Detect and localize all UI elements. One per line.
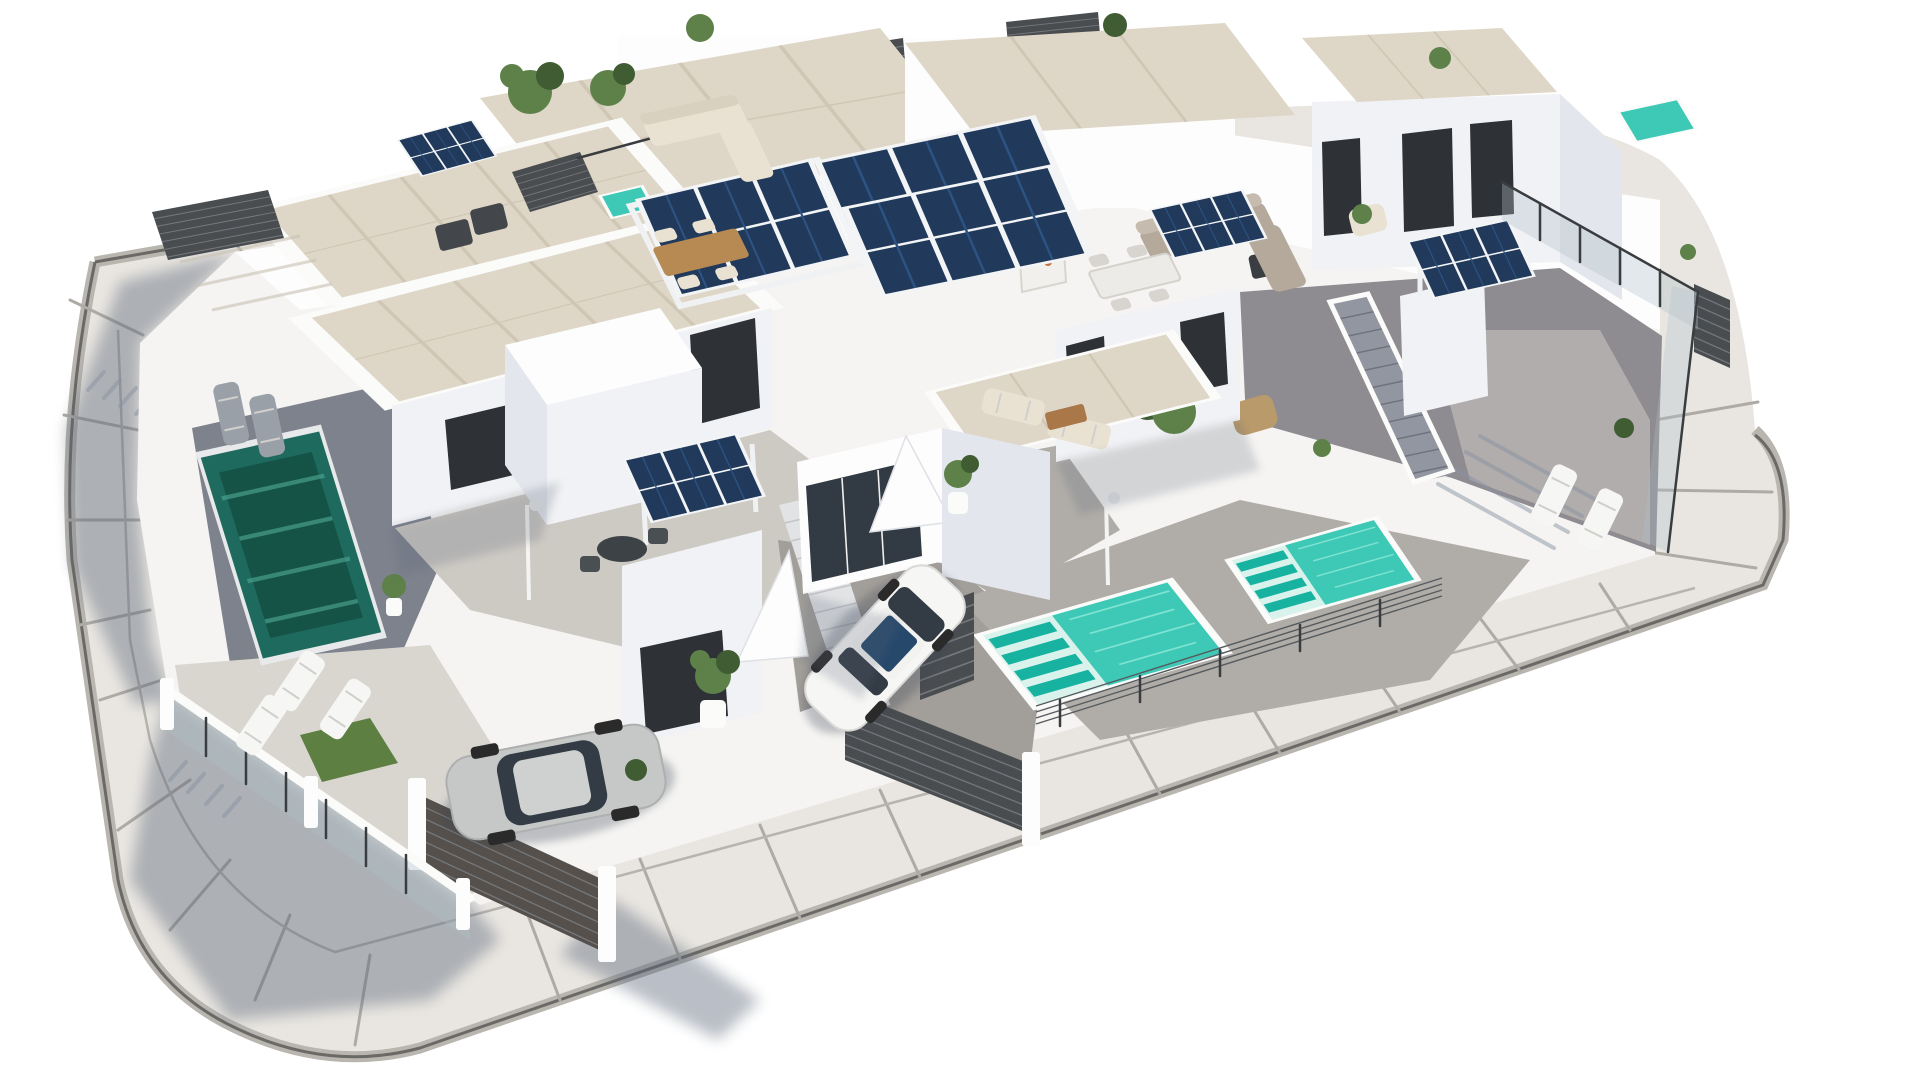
round-table-chair-1 (580, 556, 600, 572)
balustrade-pillar-2 (304, 776, 318, 828)
round-table-chair-2 (648, 528, 668, 544)
roof-far-right (1302, 28, 1557, 102)
balustrade-pillar-3 (456, 878, 470, 930)
plant-gate (625, 759, 647, 781)
plant-east-2 (1614, 418, 1634, 438)
aerial-villa-render (0, 0, 1920, 1080)
tree-top-5 (1429, 47, 1451, 69)
round-table (597, 536, 647, 562)
balustrade-pillar-1 (160, 678, 174, 730)
stair-tower-front (1400, 276, 1488, 416)
roof-deck-top-right (905, 23, 1295, 135)
gate-post-right (598, 866, 616, 962)
window-fr-2 (1402, 128, 1454, 232)
plant-tower (1352, 204, 1372, 224)
render-canvas (0, 0, 1920, 1080)
rooftop-plunge-pool-right (1618, 99, 1696, 142)
plant-east-1 (1313, 439, 1331, 457)
fence-post-centre (1022, 752, 1040, 846)
tree-top-4 (1103, 13, 1127, 37)
plant-right-corner (1680, 244, 1696, 260)
tree-top-3 (686, 14, 714, 42)
